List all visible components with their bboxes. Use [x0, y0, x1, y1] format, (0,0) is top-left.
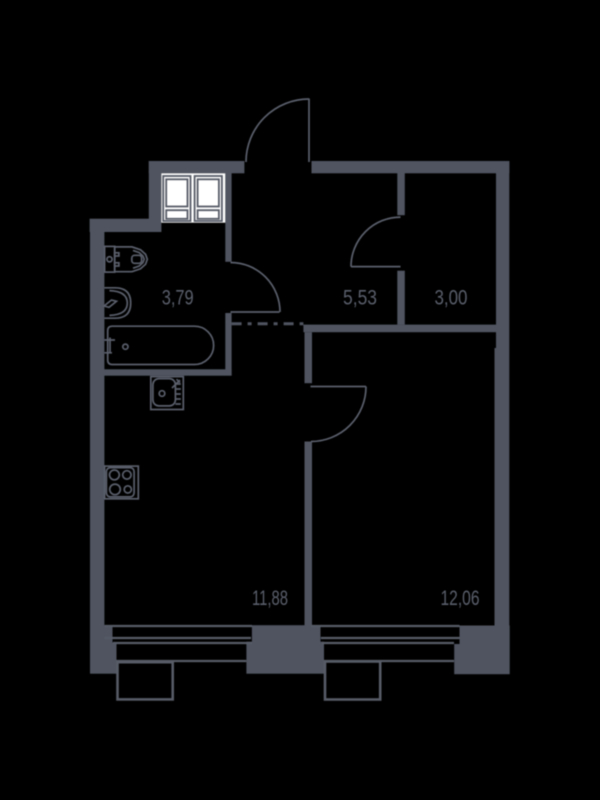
- svg-text:5,53: 5,53: [343, 286, 377, 310]
- svg-text:3,00: 3,00: [435, 286, 468, 310]
- svg-text:3,79: 3,79: [162, 286, 194, 310]
- svg-text:11,88: 11,88: [252, 586, 288, 610]
- svg-text:12,06: 12,06: [441, 586, 480, 610]
